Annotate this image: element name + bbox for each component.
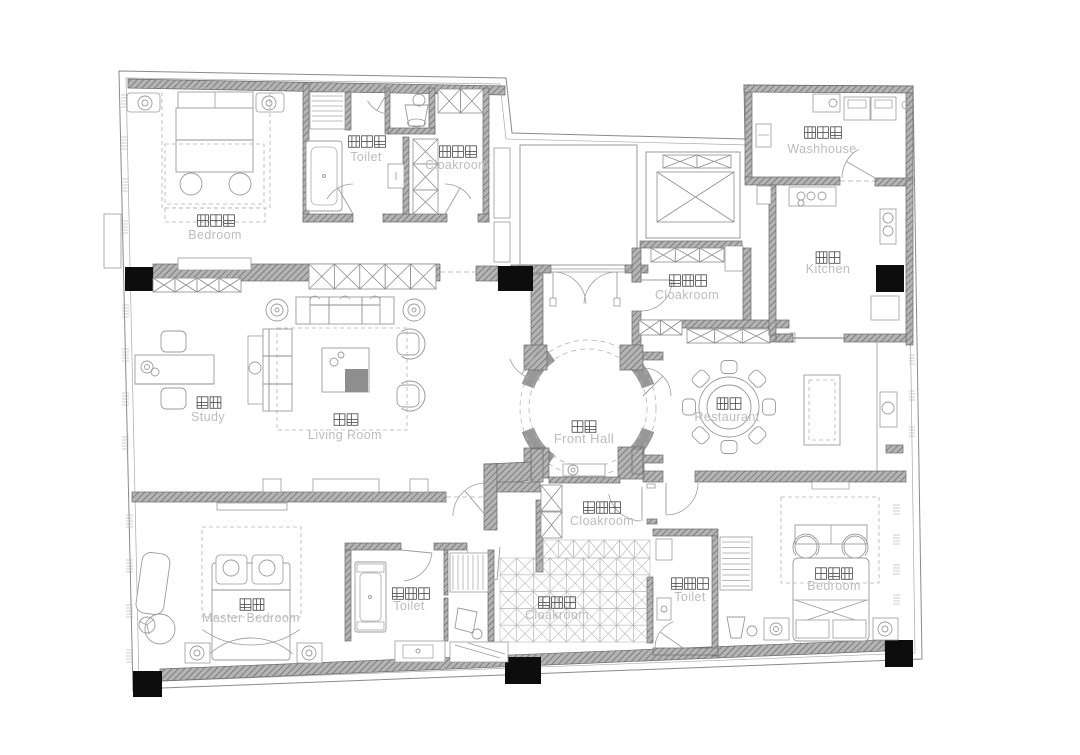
svg-text:Kitchen: Kitchen [806,262,851,276]
svg-text:Bedroom: Bedroom [807,579,861,593]
svg-text:Toilet: Toilet [350,150,382,164]
svg-text:Cloakroom: Cloakroom [655,288,719,302]
svg-text:Master Bedroom: Master Bedroom [202,611,300,625]
svg-text:Washhouse: Washhouse [787,142,856,156]
svg-text:Toilet: Toilet [393,599,425,613]
svg-text:Bedroom: Bedroom [188,228,242,242]
svg-text:Cloakroom: Cloakroom [525,608,589,622]
svg-text:Study: Study [191,410,225,424]
svg-text:Restaurant: Restaurant [694,410,759,424]
svg-text:Cloakroom: Cloakroom [425,158,489,172]
svg-text:Toilet: Toilet [674,590,706,604]
svg-text:Cloakroom: Cloakroom [570,514,634,528]
svg-text:Front Hall: Front Hall [554,431,614,446]
svg-text:Living Room: Living Room [308,428,382,442]
